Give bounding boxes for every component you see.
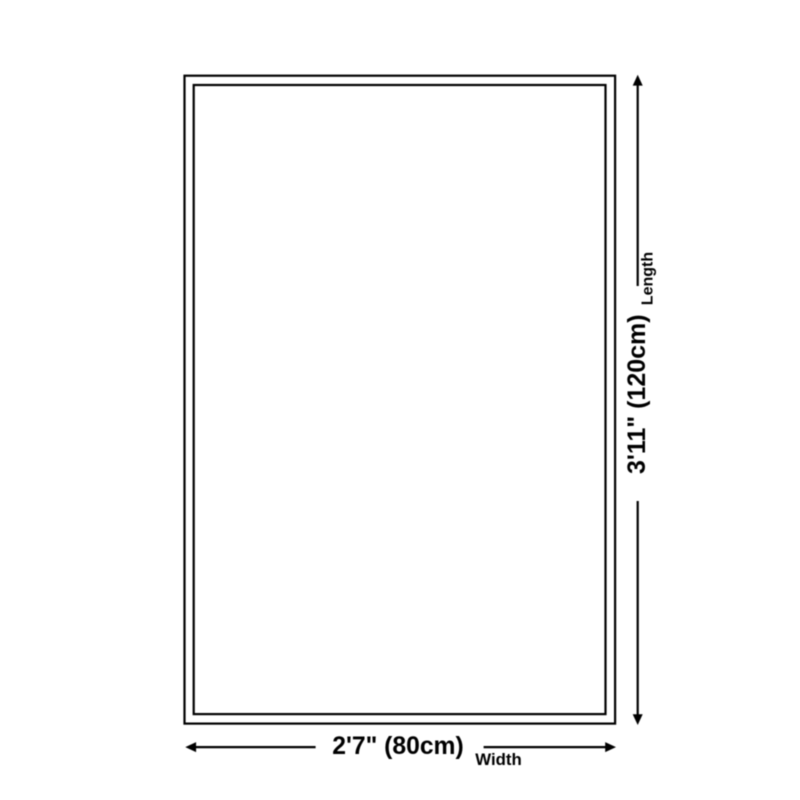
svg-text:2'7" (80cm): 2'7" (80cm) (332, 733, 463, 760)
svg-text:Length: Length (640, 252, 657, 305)
svg-text:3'11" (120cm): 3'11" (120cm) (623, 314, 651, 474)
svg-text:Width: Width (475, 750, 521, 769)
